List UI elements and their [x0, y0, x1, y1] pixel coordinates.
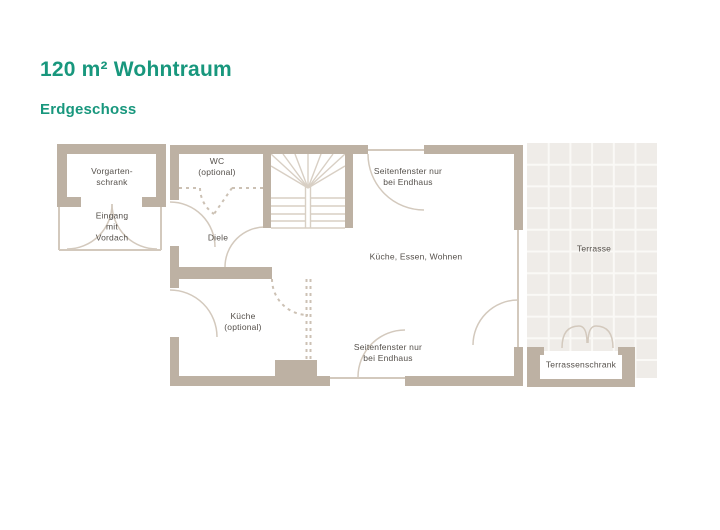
- terrassenschrank-wall-bottom: [527, 379, 635, 387]
- diele-living-door-arc: [225, 227, 265, 267]
- label-terrassenschrank: Terrassenschrank: [546, 359, 616, 370]
- top-wall-left-part: [170, 145, 368, 154]
- label-seitenfenster-top: Seitenfenster nur bei Endhaus: [374, 166, 442, 188]
- label-terrasse: Terrasse: [577, 243, 611, 254]
- vorgartenschrank-stub-left: [67, 197, 81, 207]
- floor-plan-drawing: [0, 0, 720, 530]
- label-diele: Diele: [208, 232, 228, 243]
- vorgartenschrank-wall-right: [156, 144, 166, 207]
- vorgartenschrank-stub-right: [142, 197, 156, 207]
- terrassenschrank-stub-right: [618, 347, 635, 355]
- staircase: [271, 154, 345, 228]
- kitchen-wall-block: [275, 360, 317, 376]
- kitchen-optional-door-arc: [272, 279, 308, 315]
- floorplan-page: 120 m² Wohntraum Erdgeschoss: [0, 0, 720, 530]
- label-seitenfenster-bottom: Seitenfenster nur bei Endhaus: [354, 342, 422, 364]
- label-eingang-mit-vordach: Eingang mit Vordach: [96, 210, 129, 243]
- wc-optional-door-arc: [200, 188, 214, 214]
- vorgartenschrank-wall-top: [57, 144, 166, 154]
- terrace-tiles: [527, 143, 657, 378]
- right-wall-upper: [514, 145, 523, 230]
- label-kueche-essen-wohnen: Küche, Essen, Wohnen: [370, 251, 463, 262]
- stair-wall-left: [263, 154, 271, 228]
- label-kueche-optional: Küche (optional): [224, 311, 261, 333]
- bottom-wall-right-part: [405, 376, 523, 386]
- diele-wall: [170, 267, 272, 279]
- door-arcs: [170, 154, 518, 377]
- right-wall-lower: [514, 347, 523, 386]
- top-wall-right-part: [424, 145, 523, 154]
- bottom-wall-left-part: [170, 376, 330, 386]
- label-wc-optional: WC (optional): [198, 156, 235, 178]
- left-wall-upper: [170, 145, 179, 200]
- terrace-door-arc: [473, 300, 518, 345]
- stair-wall-right: [345, 154, 353, 228]
- label-vorgartenschrank: Vorgarten- schrank: [91, 166, 133, 188]
- kitchen-door-arc: [170, 290, 217, 337]
- wc-optional-door-leaf: [214, 188, 232, 214]
- terrassenschrank-stub-left: [527, 347, 544, 355]
